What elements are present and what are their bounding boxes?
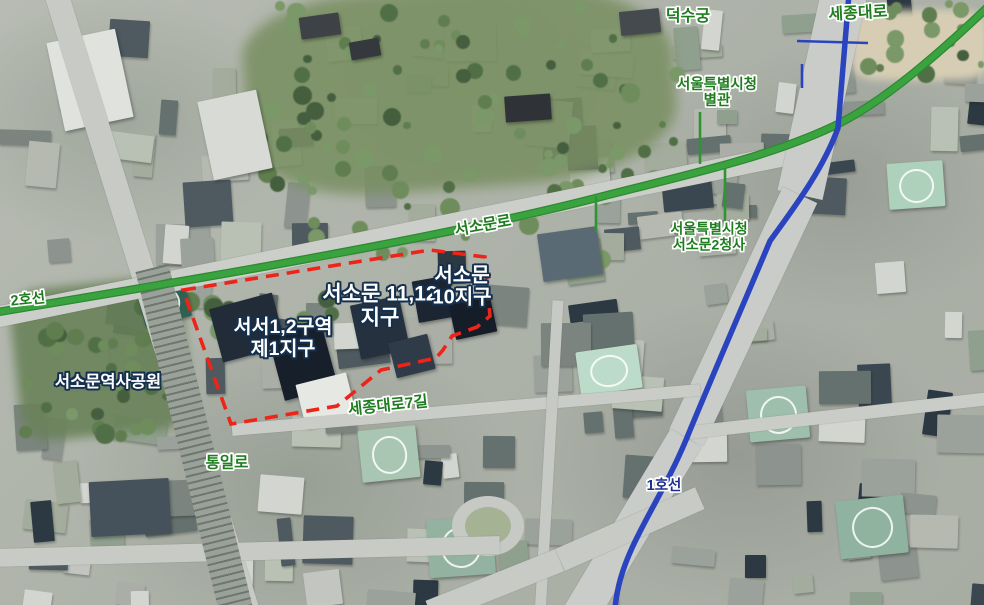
district-label-seoseo12: 서서1,2구역 제1지구 <box>234 317 333 361</box>
aerial-map-canvas: 덕수궁 세종대로 서울특별시청 별관 서소문로 2호선 서울특별시청 서소문2청… <box>0 0 984 605</box>
road-label-sejongdaero: 세종대로 <box>828 4 888 25</box>
satellite-imagery-layer <box>0 0 984 605</box>
district-label-1112: 서소문 11,12 지구 <box>322 282 437 329</box>
road-label-tongilro: 통일로 <box>206 454 249 471</box>
map-label-cityhall-seosomun2: 서울특별시청 서소문2청사 <box>670 221 747 252</box>
map-label-cityhall-annex: 서울특별시청 별관 <box>677 77 757 109</box>
map-label-seosomun-history-park: 서소문역사공원 <box>55 373 161 391</box>
district-label-10: 서소문 10지구 <box>432 265 491 310</box>
map-label-deoksugung: 덕수궁 <box>666 8 710 26</box>
subway-line1-label: 1호선 <box>647 478 682 494</box>
